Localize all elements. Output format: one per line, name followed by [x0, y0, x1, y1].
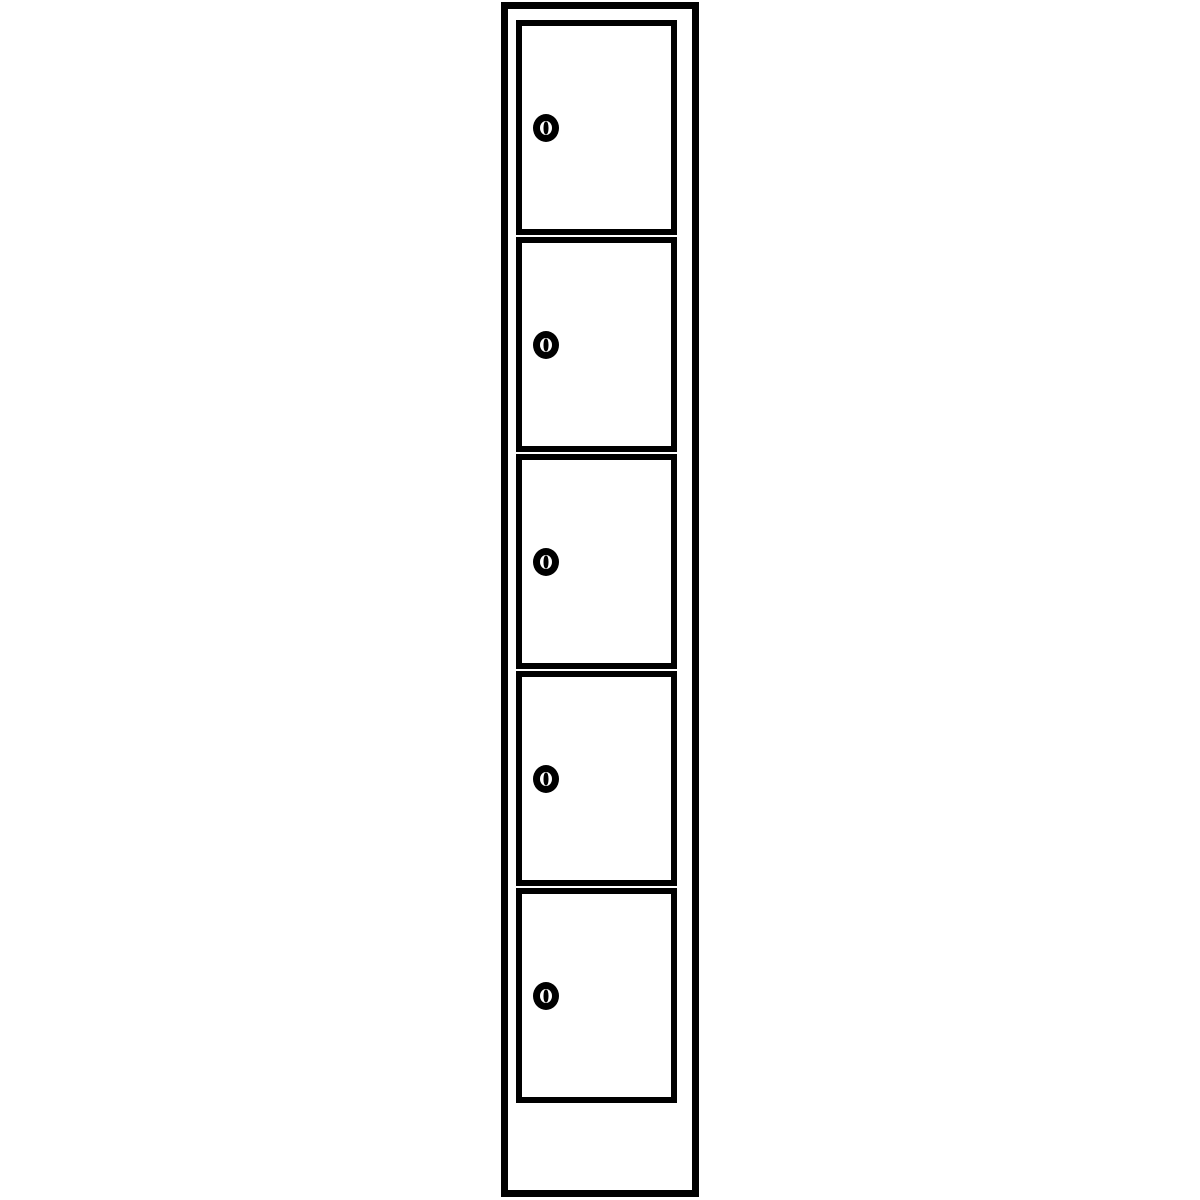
cylinder-lock-icon — [533, 548, 559, 576]
locker-door-4 — [516, 671, 677, 886]
locker-door-5 — [516, 888, 677, 1103]
keyway-slot-icon — [544, 121, 549, 134]
keyway-slot-icon — [544, 772, 549, 785]
locker-door-1 — [516, 20, 677, 235]
keyway-slot-icon — [544, 338, 549, 351]
locker-door-2 — [516, 237, 677, 452]
cylinder-lock-icon — [533, 765, 559, 793]
locker-door-3 — [516, 454, 677, 669]
keyway-slot-icon — [544, 555, 549, 568]
cylinder-lock-icon — [533, 331, 559, 359]
locker-product-drawing: { "figure": { "type": "line-drawing", "s… — [0, 0, 1200, 1200]
cylinder-lock-icon — [533, 114, 559, 142]
locker-door-stack — [516, 20, 677, 1103]
keyway-slot-icon — [544, 989, 549, 1002]
cylinder-lock-icon — [533, 982, 559, 1010]
locker-cabinet — [501, 2, 699, 1197]
